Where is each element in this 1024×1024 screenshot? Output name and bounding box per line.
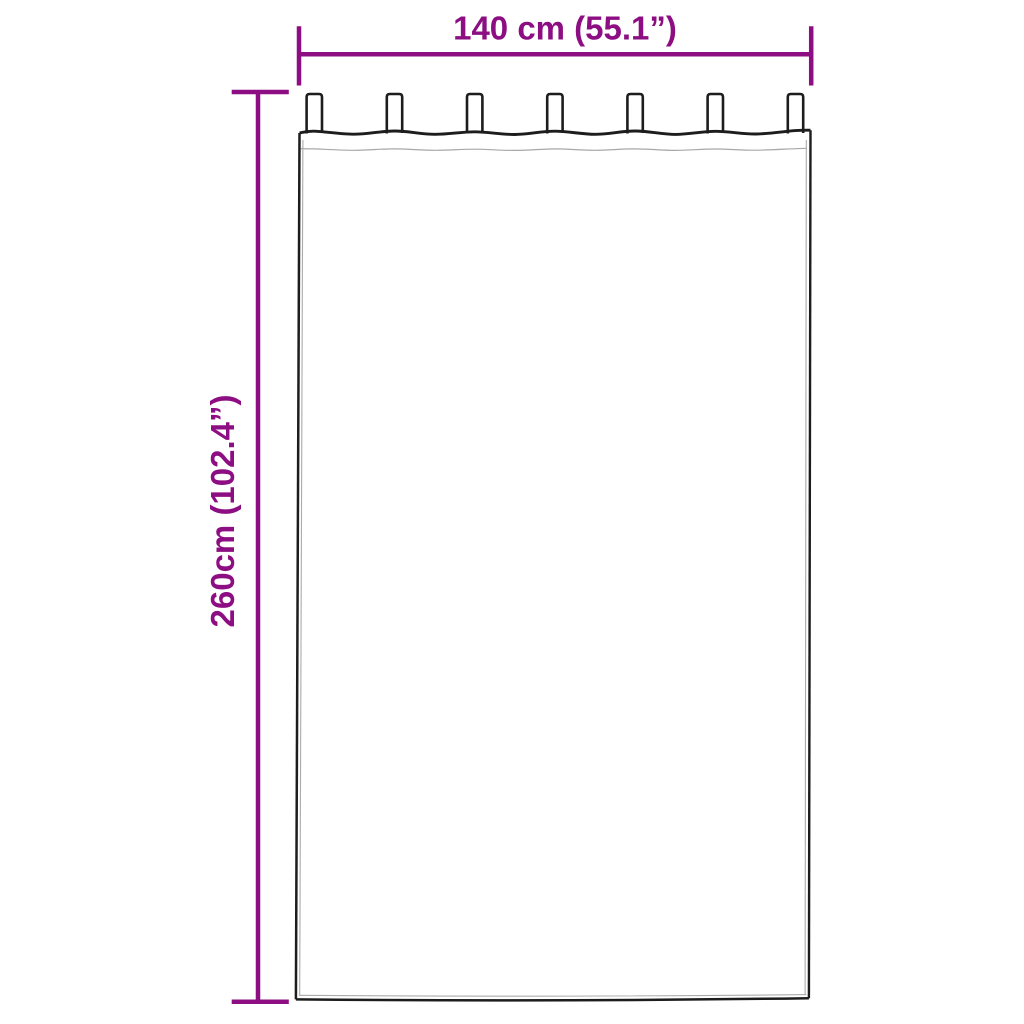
- svg-text:260cm (102.4”): 260cm (102.4”): [204, 395, 241, 628]
- svg-text:140 cm (55.1”): 140 cm (55.1”): [453, 10, 677, 47]
